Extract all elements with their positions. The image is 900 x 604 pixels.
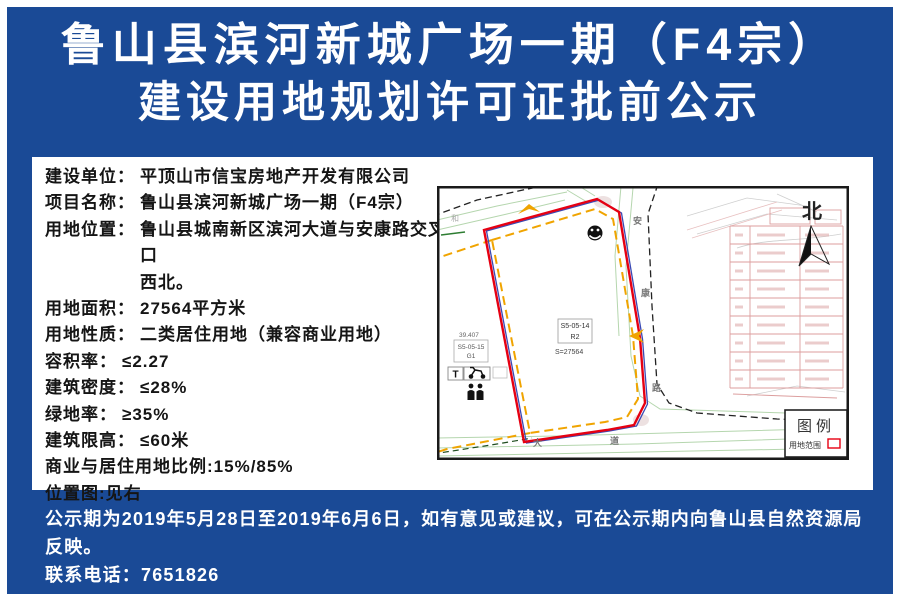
map-svg: S5-05-14 R2 S=27564 39.407 S5-05-15 G1 T: [437, 186, 849, 460]
north-label: 北: [802, 200, 822, 223]
title-line-1: 鲁山县滨河新城广场一期（F4宗）: [0, 16, 900, 74]
info-row-land-use: 用地性质： 二类居住用地（兼容商业用地）: [45, 322, 447, 348]
map-corner-char: 和: [451, 214, 459, 223]
map-legend: 图例 用地范围: [785, 410, 847, 457]
info-row-ratio-commercial: 商业与居住用地比例: 15%/85%: [45, 454, 447, 480]
info-label: 容积率：: [45, 349, 117, 375]
info-label: 项目名称：: [45, 190, 135, 216]
info-value: ≥35%: [122, 402, 447, 428]
elevation-text: 39.407: [459, 332, 479, 339]
road-name-char: 路: [652, 382, 662, 393]
t-marker-text: T: [452, 370, 458, 381]
road-name-char: 安: [633, 215, 642, 226]
info-value: 二类居住用地（兼容商业用地）: [140, 322, 447, 348]
road-name-char: 康: [641, 287, 651, 298]
info-label: 用地面积：: [45, 296, 135, 322]
project-info-list: 建设单位： 平顶山市信宝房地产开发有限公司 项目名称： 鲁山县滨河新城广场一期（…: [45, 164, 447, 507]
info-row-location-map: 位置图: 见右: [45, 481, 447, 507]
legend-title: 图例: [797, 418, 835, 435]
info-row-location: 用地位置： 鲁山县城南新区滨河大道与安康路交叉口 西北。: [45, 217, 447, 296]
adjacent-use-text: G1: [467, 353, 476, 360]
info-value: ≤60米: [140, 428, 447, 454]
location-line-1: 鲁山县城南新区滨河大道与安康路交叉口: [140, 217, 447, 270]
info-row-height-limit: 建筑限高： ≤60米: [45, 428, 447, 454]
info-value: ≤2.27: [122, 349, 447, 375]
notice-title: 鲁山县滨河新城广场一期（F4宗） 建设用地规划许可证批前公示: [0, 16, 900, 131]
info-label: 绿地率：: [45, 402, 117, 428]
info-value: 15%/85%: [214, 454, 447, 480]
road-name-char: 道: [610, 435, 619, 446]
info-value: 27564平方米: [140, 296, 447, 322]
title-line-2: 建设用地规划许可证批前公示: [0, 76, 900, 131]
site-area-text: S=27564: [555, 349, 583, 356]
road-name-char: 大: [533, 437, 542, 448]
info-value: 见右: [106, 481, 447, 507]
info-value: 平顶山市信宝房地产开发有限公司: [140, 164, 447, 190]
info-label: 建设单位：: [45, 164, 135, 190]
site-use-text: R2: [571, 334, 580, 341]
info-label: 位置图:: [45, 481, 106, 507]
info-row-developer: 建设单位： 平顶山市信宝房地产开发有限公司: [45, 164, 447, 190]
notice-period-text: 公示期为2019年5月28日至2019年6月6日，如有意见或建议，可在公示期内向…: [45, 505, 875, 561]
info-row-area: 用地面积： 27564平方米: [45, 296, 447, 322]
info-value: 鲁山县城南新区滨河大道与安康路交叉口 西北。: [140, 217, 447, 296]
location-line-2: 西北。: [140, 270, 447, 296]
contact-phone-text: 联系电话：7651826: [45, 561, 875, 589]
site-code-text: S5-05-14: [561, 323, 590, 330]
info-row-project-name: 项目名称： 鲁山县滨河新城广场一期（F4宗）: [45, 190, 447, 216]
site-location-map: S5-05-14 R2 S=27564 39.407 S5-05-15 G1 T: [437, 186, 849, 460]
notice-footer: 公示期为2019年5月28日至2019年6月6日，如有意见或建议，可在公示期内向…: [45, 505, 875, 589]
info-label: 建筑密度：: [45, 375, 135, 401]
legend-item-label: 用地范围: [789, 440, 821, 450]
info-value: 鲁山县滨河新城广场一期（F4宗）: [140, 190, 447, 216]
info-label: 用地性质：: [45, 322, 135, 348]
info-label: 建筑限高：: [45, 428, 135, 454]
info-row-far: 容积率： ≤2.27: [45, 349, 447, 375]
info-row-green-ratio: 绿地率： ≥35%: [45, 402, 447, 428]
info-label: 商业与居住用地比例:: [45, 454, 214, 480]
info-row-density: 建筑密度： ≤28%: [45, 375, 447, 401]
info-panel: 建设单位： 平顶山市信宝房地产开发有限公司 项目名称： 鲁山县滨河新城广场一期（…: [32, 157, 873, 490]
info-label: 用地位置：: [45, 217, 135, 243]
info-value: ≤28%: [140, 375, 447, 401]
face-stamp-icon: [588, 226, 603, 241]
adjacent-code-text: S5-05-15: [458, 344, 485, 351]
